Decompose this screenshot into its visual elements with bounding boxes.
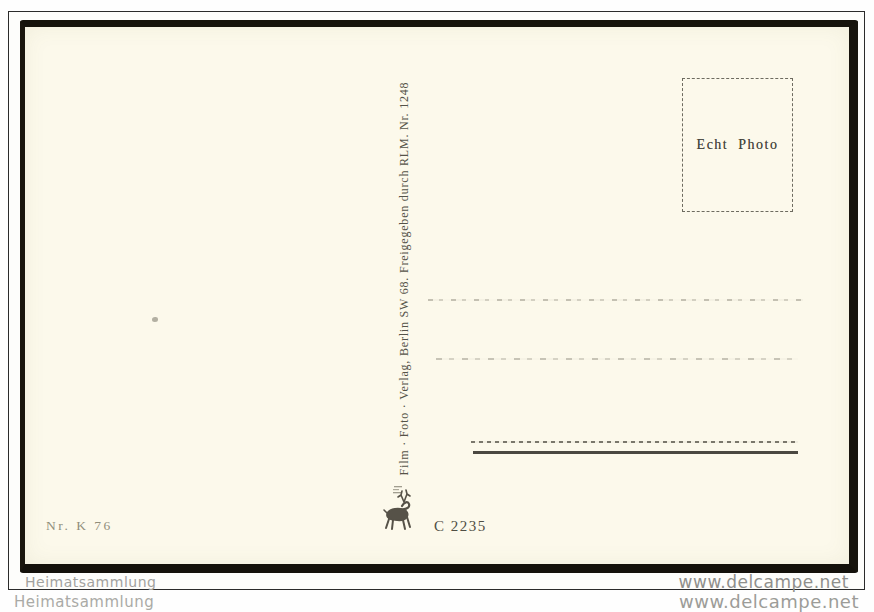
deer-logo-icon (381, 485, 419, 535)
publisher-imprint: Film · Foto · Verlag, Berlin SW 68. Frei… (397, 65, 414, 492)
card-number: Nr. K 76 (46, 518, 113, 534)
address-rule-line (473, 451, 798, 454)
watermark-collection-inner: Heimatsammlung (25, 574, 156, 590)
paper-speck (152, 317, 158, 322)
watermark-collection-outer: Heimatsammlung (14, 593, 154, 611)
stamp-box-label: Echt Photo (697, 137, 779, 153)
address-ghost-line-1 (428, 299, 803, 301)
address-ghost-line-3 (471, 441, 798, 443)
order-code: C 2235 (434, 518, 487, 535)
stamp-box: Echt Photo (682, 78, 793, 212)
scan-image: Echt Photo Film · Foto · Verlag, Berlin … (0, 0, 874, 612)
watermark-site-inner: www.delcampe.net (679, 572, 849, 592)
watermark-site-outer: www.delcampe.net (679, 591, 859, 612)
address-ghost-line-2 (436, 358, 798, 360)
